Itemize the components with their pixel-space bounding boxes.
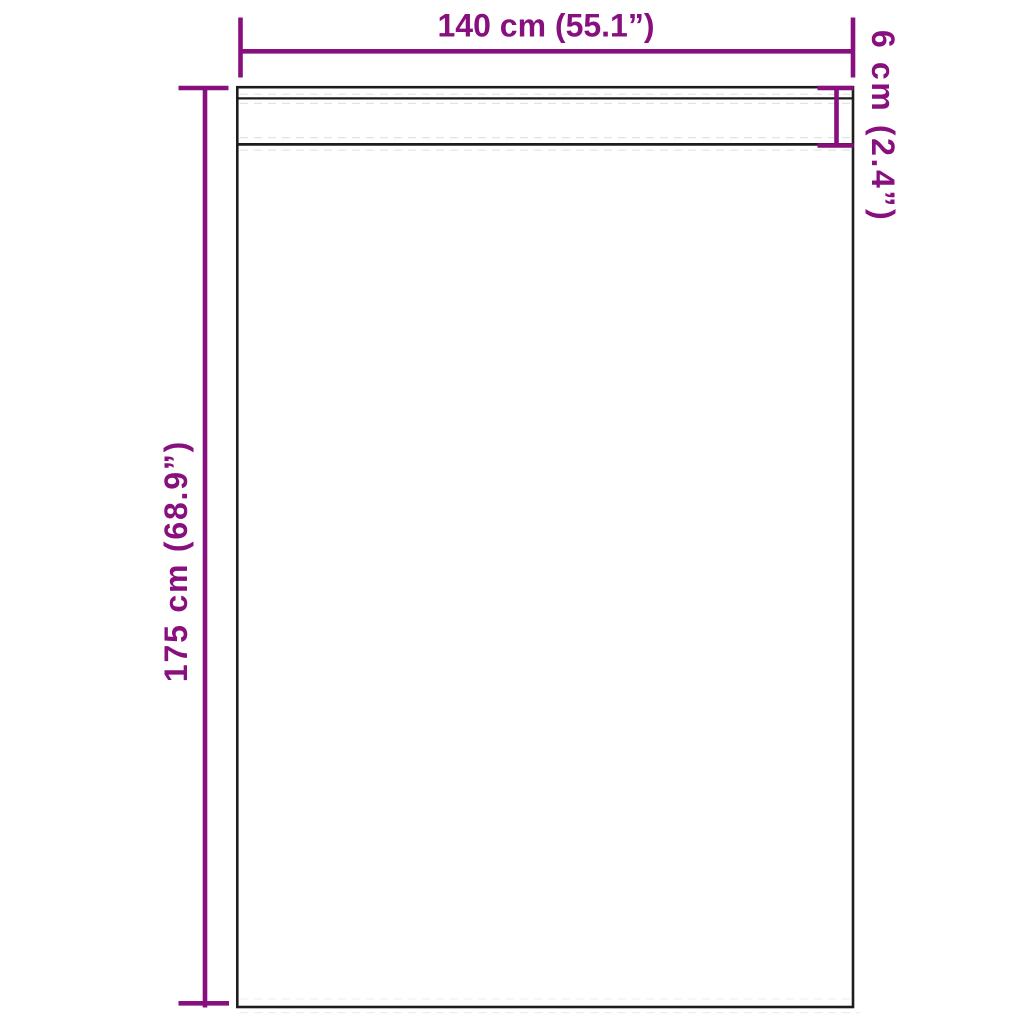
svg-text:140 cm (55.1”): 140 cm (55.1”): [437, 8, 654, 44]
svg-text:6 cm (2.4”): 6 cm (2.4”): [865, 30, 901, 222]
svg-text:175 cm (68.9”): 175 cm (68.9”): [158, 440, 194, 682]
